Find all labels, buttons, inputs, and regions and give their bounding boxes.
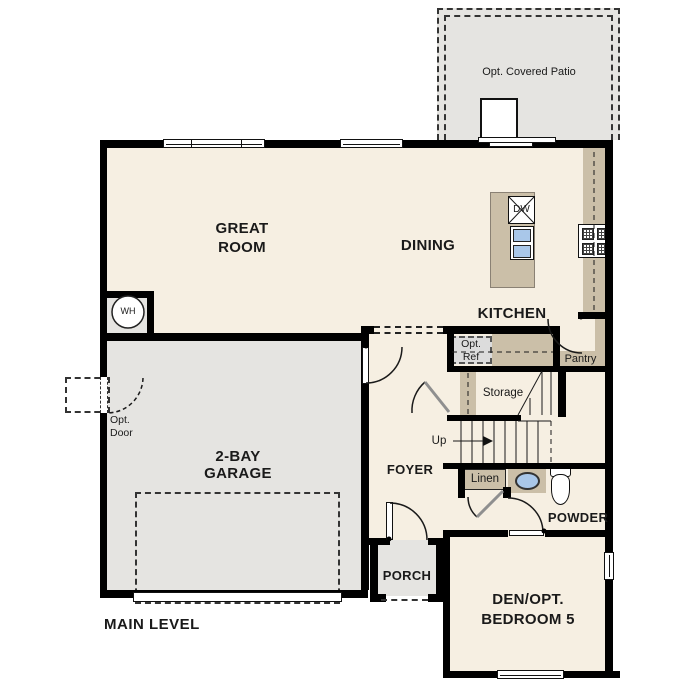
wall-pantry-top-stub <box>578 312 612 319</box>
wall-wh-right <box>147 291 154 340</box>
wall-storage-bottom <box>447 415 521 421</box>
pantry-label: Pantry <box>553 353 608 367</box>
window-glass-line <box>166 144 262 145</box>
wall-left <box>100 140 107 598</box>
kitchen-label: KITCHEN <box>462 305 562 324</box>
wall-porch-corner-right <box>428 594 444 602</box>
porch-step-dashed <box>381 599 428 601</box>
den-door-leaf <box>509 530 544 536</box>
wall-foyer-bottom-right <box>428 538 446 545</box>
wall-storage-right <box>558 371 566 417</box>
storage-label: Storage <box>470 386 536 400</box>
window-mullion <box>191 140 192 147</box>
powder-sink <box>515 472 540 490</box>
window-den-bottom <box>497 670 564 679</box>
garage-entry-door-leaf <box>362 347 369 384</box>
garage-door-panel <box>133 592 342 602</box>
window-den-right <box>604 552 614 580</box>
wall-den-top-left <box>443 530 508 537</box>
dining-label: DINING <box>388 237 468 256</box>
den-label: DEN/OPT. BEDROOM 5 <box>448 590 608 629</box>
patio-label: Opt. Covered Patio <box>459 66 599 80</box>
foyer-label: FOYER <box>370 462 450 478</box>
foyer-lower-floor <box>368 470 448 540</box>
porch-label: PORCH <box>367 568 447 584</box>
sliding-patio-door-panel <box>489 142 533 147</box>
optional-door-label: Opt. Door <box>110 414 152 440</box>
island-sink-basin <box>513 229 531 242</box>
dishwasher-label: DW <box>508 204 535 217</box>
great-room-label: GREAT ROOM <box>182 220 302 258</box>
wall-counter-top <box>443 326 560 334</box>
garage-door-dashed <box>135 492 340 604</box>
main-level-label: MAIN LEVEL <box>104 616 244 635</box>
floorplan-main-level: GREAT ROOM DINING KITCHEN 2-BAY GARAGE F… <box>0 0 687 687</box>
wall-linen-vanity-stub <box>503 487 511 498</box>
cased-opening-dashed <box>374 326 443 334</box>
garage-label: 2-BAY GARAGE <box>178 449 298 482</box>
window-dining <box>340 139 403 148</box>
hall-counter <box>492 334 553 366</box>
wall-counter-bottom <box>447 366 613 372</box>
optional-door-wall-gap <box>100 377 108 413</box>
front-door-leaf <box>386 502 393 540</box>
window-glass-line <box>343 144 400 145</box>
pantry-side-shelf <box>595 319 605 351</box>
island-sink-basin <box>513 245 531 258</box>
wall-stairs-bottom <box>443 463 613 469</box>
stove-burner <box>582 228 594 240</box>
water-heater-label: WH <box>112 306 144 317</box>
wall-opening-stub <box>361 326 374 334</box>
linen-label: Linen <box>464 472 506 486</box>
powder-label: POWDER <box>537 510 619 526</box>
toilet-bowl <box>551 474 570 505</box>
window-great-room <box>163 139 265 148</box>
optional-fridge-label: Opt. Ref <box>450 338 492 363</box>
wall-den-top-right <box>545 530 613 537</box>
window-glass-line <box>500 675 561 676</box>
wall-greatroom-garage <box>100 333 368 341</box>
stove-burner <box>582 243 594 255</box>
window-mullion <box>241 140 242 147</box>
patio-landing <box>480 98 518 139</box>
window-glass-line <box>609 555 610 577</box>
stairs-up-label: Up <box>428 434 450 448</box>
